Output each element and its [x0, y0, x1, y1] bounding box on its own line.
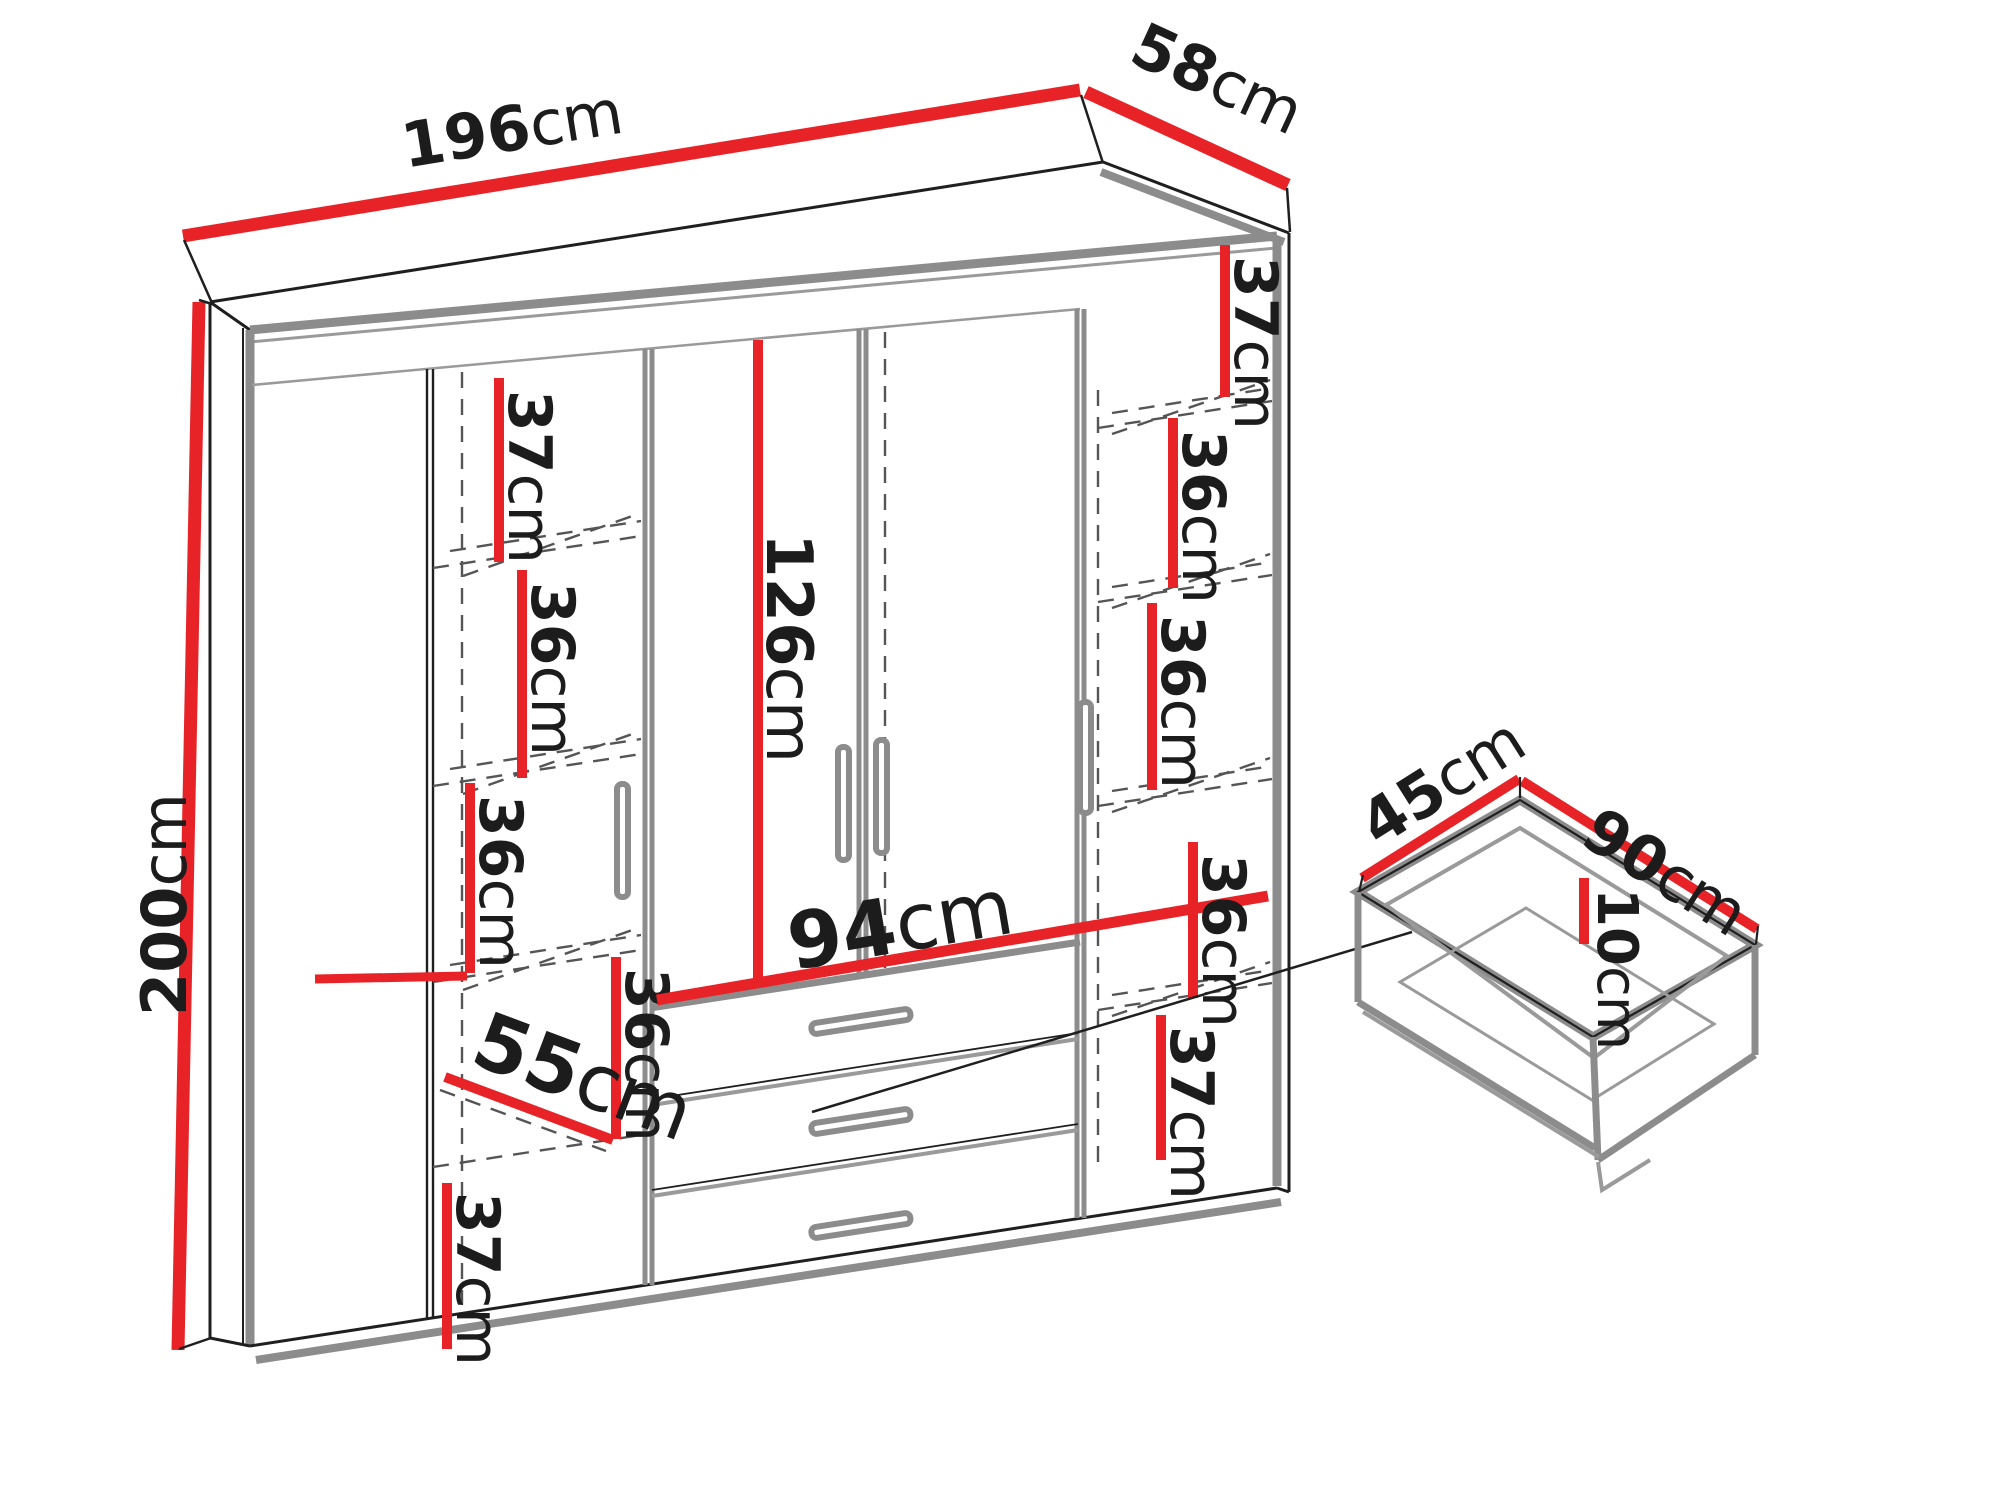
dimension-tick [1287, 188, 1290, 232]
wardrobe-left-side [210, 302, 250, 1346]
diagram-canvas: 196cm 58cm 200cm 37cm 36cm 36cm 36cm 55c… [0, 0, 2000, 1499]
dim-label-right-shelf-5: 37cm [1156, 1026, 1226, 1199]
drawer-right-bottom-edge [1598, 1055, 1755, 1160]
dim-label-right-shelf-3: 36cm [1147, 615, 1217, 788]
drawer-separator [652, 1130, 1078, 1196]
dimension-height: 200cm [128, 300, 212, 1350]
dim-label-drawer-depth: 45cm [1347, 703, 1537, 860]
door-handle [876, 740, 887, 853]
dim-label-left-shelf-2: 36cm [517, 582, 587, 755]
drawer-separator [652, 1124, 1078, 1190]
wardrobe-dimension-diagram: 196cm 58cm 200cm 37cm 36cm 36cm 36cm 55c… [0, 0, 2000, 1499]
dim-label-left-shelf-1: 37cm [494, 390, 564, 563]
drawer-handle [811, 1212, 912, 1238]
drawer-front-corner-edge [1593, 1037, 1598, 1160]
drawer-separator [652, 1033, 1078, 1099]
dimension-line-shelf-foot [315, 976, 467, 979]
dimensions-right-column: 37cm 36cm 36cm 36cm 37cm [1147, 245, 1290, 1199]
drawer-detail: 45cm 90cm 10cm [1347, 703, 1760, 1190]
dim-label-right-shelf-1: 37cm [1220, 256, 1290, 429]
dimension-drawer-depth: 45cm [1347, 703, 1537, 892]
doors [617, 702, 1091, 897]
shelf-dashed-line [433, 754, 641, 786]
dimension-line-width [183, 90, 1080, 236]
drawer-handle [811, 1008, 912, 1034]
dim-label-left-shelf-3: 36cm [465, 795, 535, 968]
dim-label-hanging-height: 126cm [751, 533, 825, 762]
dim-label-height: 200cm [128, 794, 201, 1016]
dim-label-right-shelf-4: 36cm [1188, 854, 1258, 1027]
dim-label-right-shelf-2: 36cm [1168, 430, 1238, 603]
drawer-handle [811, 1108, 912, 1134]
dim-label-drawer-height: 10cm [1584, 888, 1649, 1049]
door-handle [617, 784, 628, 897]
dimension-tick [184, 240, 212, 303]
wardrobe-bottom [250, 1188, 1281, 1360]
wardrobe-top-face [210, 162, 1289, 342]
door-handle [1080, 702, 1091, 813]
dim-label-left-shelf-5: 37cm [442, 1192, 512, 1365]
drawer-front-bottom-edge [1358, 1002, 1595, 1148]
dimension-drawer-height: 10cm [1584, 878, 1649, 1049]
drawer-slide-foot [1598, 1160, 1650, 1190]
door-handle [838, 747, 849, 860]
dim-label-drawer-section-width: 94cm [781, 862, 1018, 988]
